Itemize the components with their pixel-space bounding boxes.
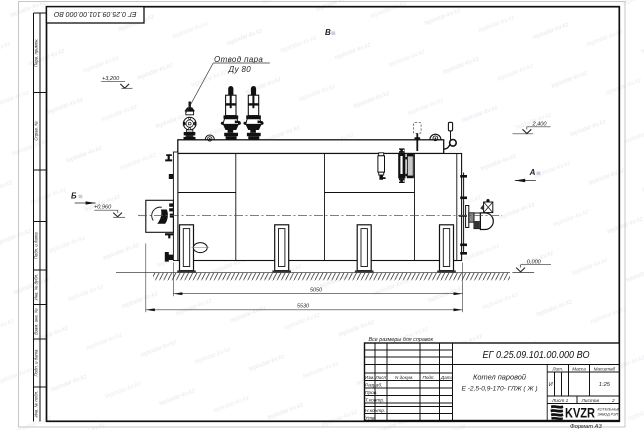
svg-text:Лист: Лист (375, 375, 388, 380)
svg-text:Е -2,5-0,9-170- ГЛЖ ( Ж ): Е -2,5-0,9-170- ГЛЖ ( Ж ) (461, 386, 537, 393)
svg-text:5530: 5530 (297, 303, 309, 309)
svg-text:Б: Б (71, 192, 77, 201)
svg-text:Формат А3: Формат А3 (570, 424, 602, 430)
svg-text:Справ. №: Справ. № (34, 121, 39, 141)
svg-text:А: А (529, 168, 536, 177)
svg-text:Разраб.: Разраб. (365, 383, 382, 389)
svg-text:Дата: Дата (440, 375, 454, 380)
svg-text:Листов: Листов (581, 398, 600, 404)
svg-text:Подп. и дата: Подп. и дата (34, 232, 39, 260)
svg-text:Лит.: Лит. (551, 366, 563, 371)
svg-text:Лист 1: Лист 1 (551, 398, 569, 404)
svg-text:+3,200: +3,200 (102, 76, 120, 82)
svg-text:ЗАВОД РЭП: ЗАВОД РЭП (598, 413, 619, 417)
svg-text:В: В (325, 28, 331, 37)
svg-text:Все размеры для справок: Все размеры для справок (369, 337, 434, 343)
svg-text:КОТЕЛЬНЫЙ: КОТЕЛЬНЫЙ (598, 408, 621, 412)
svg-text:Пров.: Пров. (365, 390, 378, 396)
svg-text:Инв. № подл.: Инв. № подл. (34, 391, 39, 418)
svg-text:Перв. примен.: Перв. примен. (34, 38, 39, 67)
svg-text:Т.контр.: Т.контр. (365, 398, 384, 404)
svg-text:Инв. № дубл.: Инв. № дубл. (34, 274, 39, 300)
svg-text:Подп.: Подп. (423, 375, 435, 380)
svg-text:Взам. инв. №: Взам. инв. № (34, 308, 39, 335)
svg-text:N докум.: N докум. (395, 375, 414, 380)
svg-text:И: И (549, 382, 553, 388)
svg-text:Изм.: Изм. (365, 375, 375, 380)
svg-text:+0,960: +0,960 (94, 205, 112, 211)
svg-text:Подп. и дата: Подп. и дата (34, 349, 39, 377)
svg-text:Котел паровой: Котел паровой (473, 373, 526, 382)
svg-text:Утв.: Утв. (365, 415, 376, 421)
svg-text:Отвод пара: Отвод пара (214, 55, 263, 64)
svg-text:ЕГ 0.25.09.101.00.000 ВО: ЕГ 0.25.09.101.00.000 ВО (53, 10, 136, 17)
svg-text:1:25: 1:25 (599, 382, 611, 388)
svg-text:ЕГ 0.25.09.101.00.000 ВО: ЕГ 0.25.09.101.00.000 ВО (483, 350, 590, 361)
svg-text:5050: 5050 (310, 288, 322, 294)
svg-text:Н.контр.: Н.контр. (365, 408, 385, 414)
svg-text:Масса: Масса (572, 366, 586, 371)
svg-text:Ду 80: Ду 80 (228, 65, 252, 74)
svg-text:Масштаб: Масштаб (594, 366, 616, 371)
svg-text:KVZR: KVZR (565, 405, 595, 421)
svg-text:2: 2 (611, 398, 615, 404)
